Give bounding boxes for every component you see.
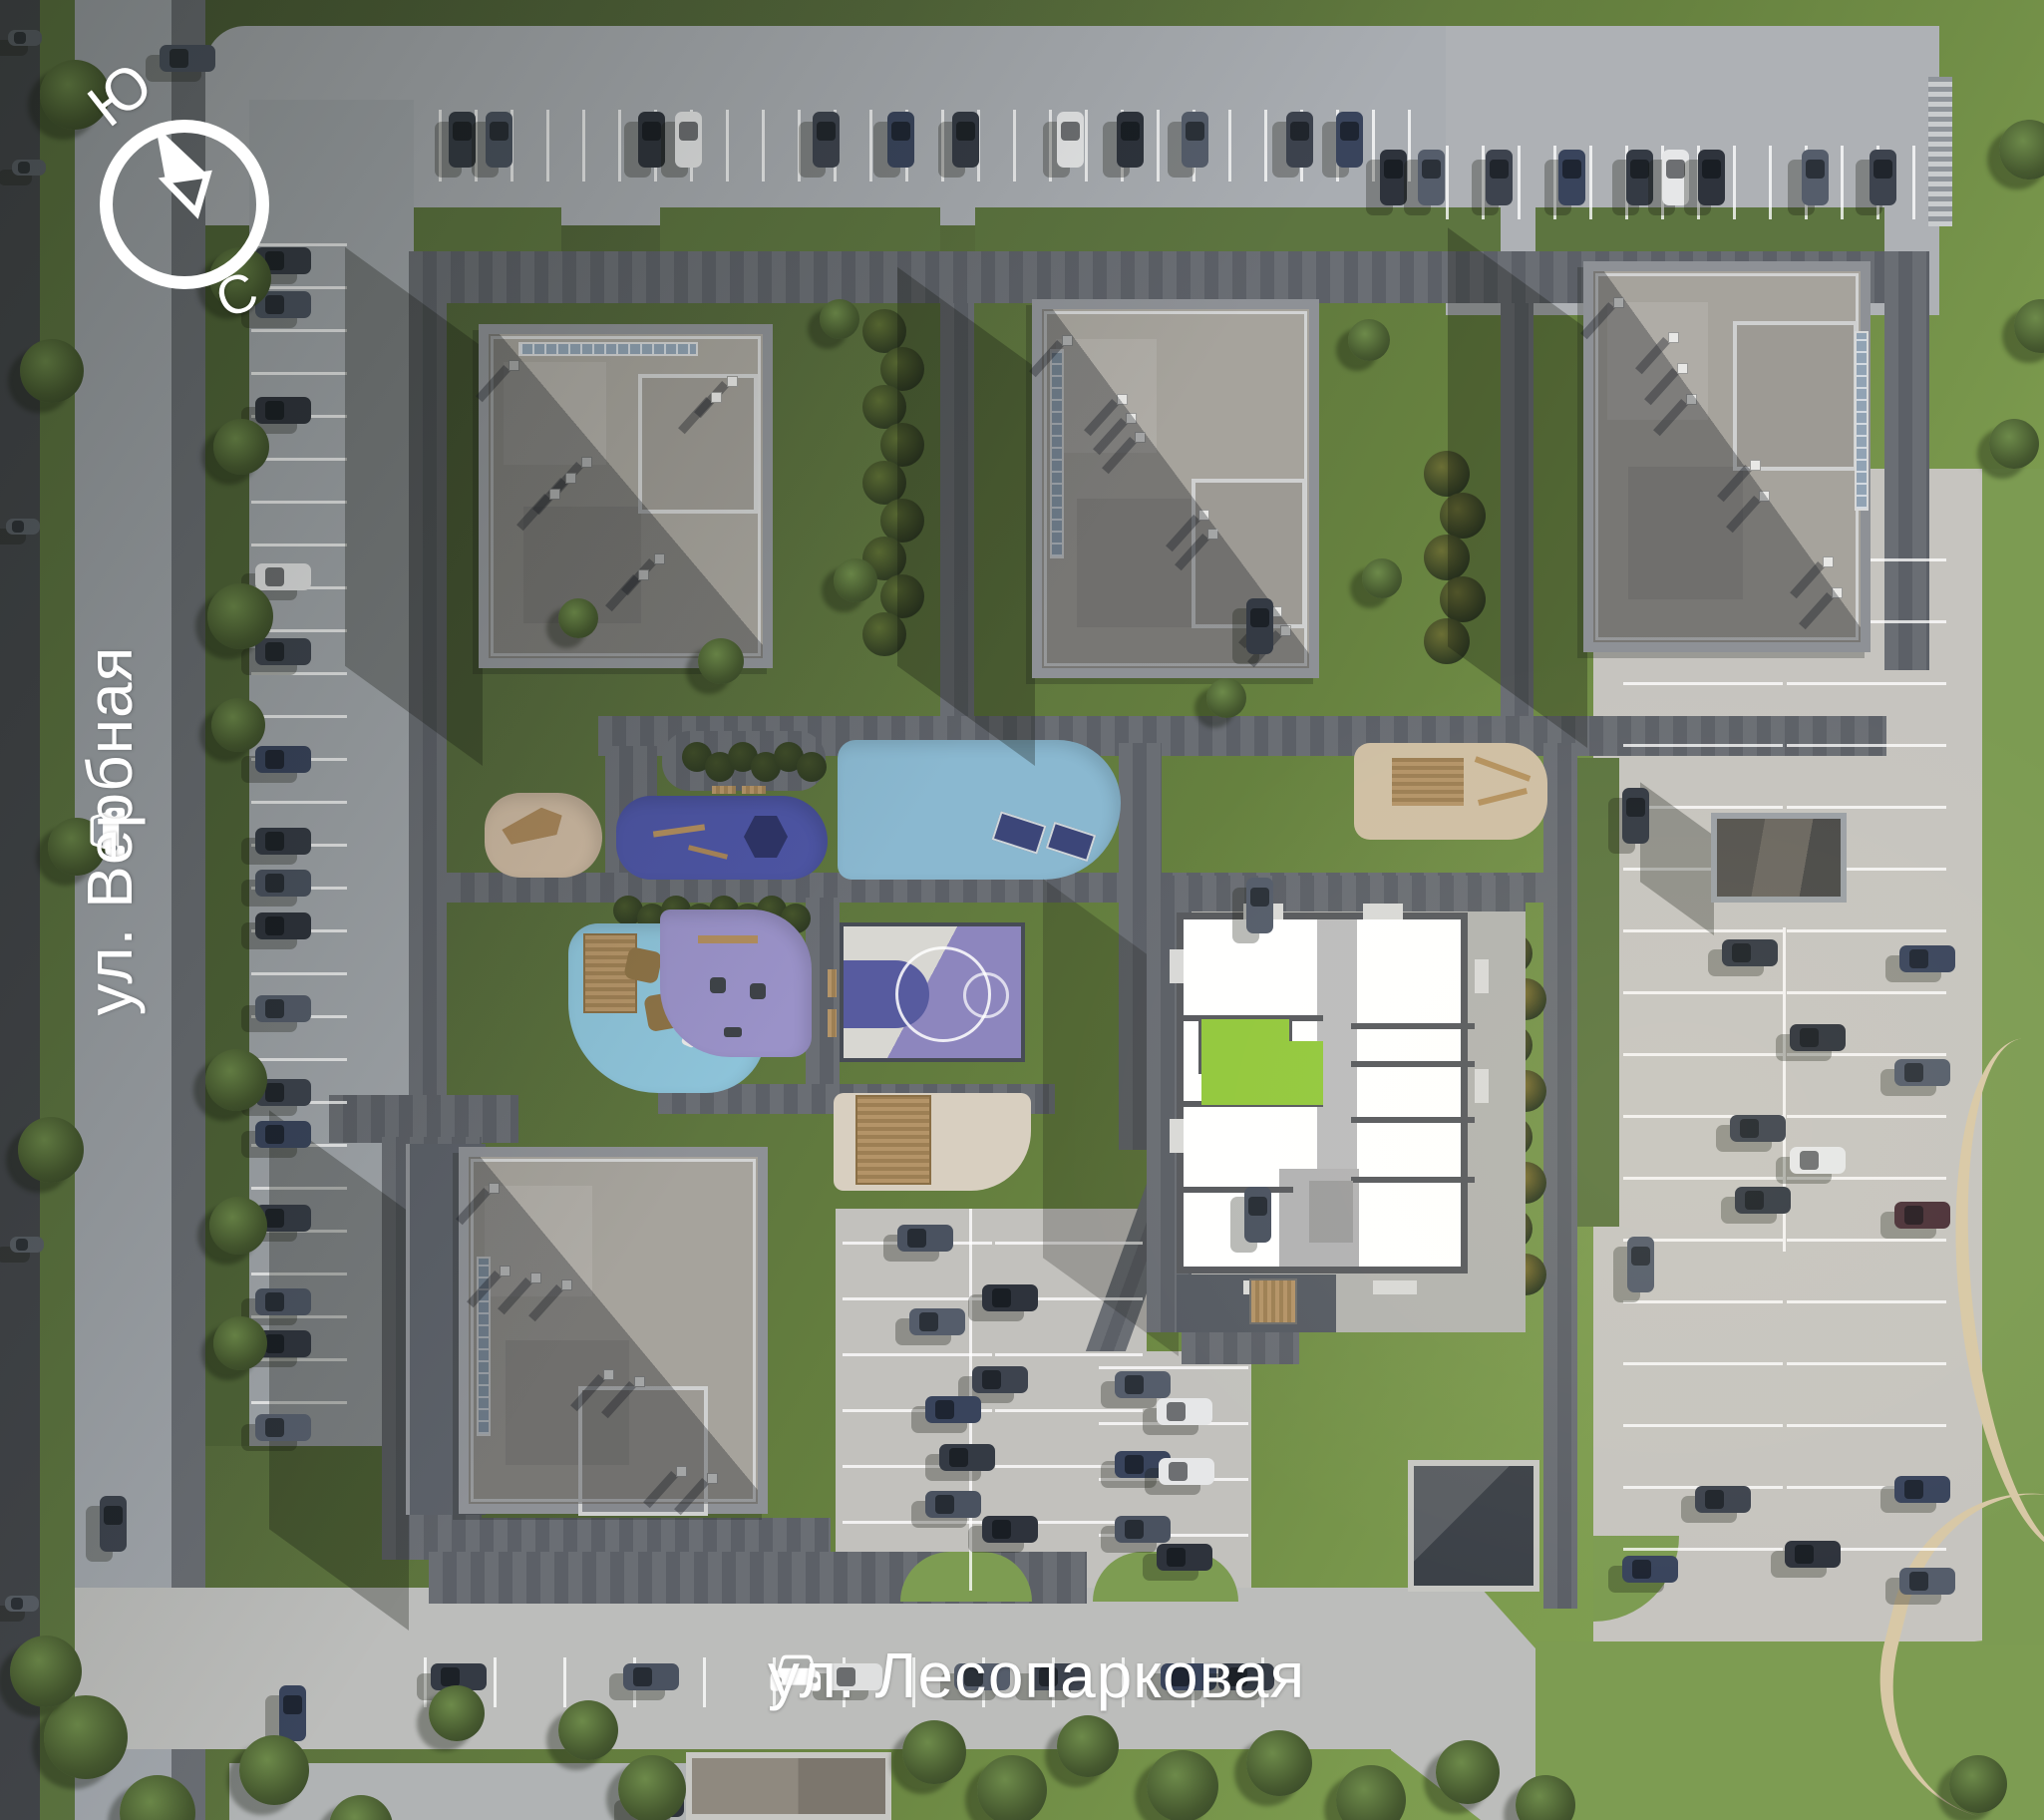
stall-line [1013,110,1016,182]
tree [558,1700,618,1760]
tree [1949,1755,2007,1813]
tree [1362,558,1402,598]
stall-line [726,110,729,182]
stall-line [582,110,585,182]
car [638,112,665,168]
car [1380,150,1407,205]
building-tower-1[interactable] [479,324,773,668]
tree [213,419,269,475]
car [1899,945,1955,972]
green-island [1577,758,1619,1227]
tree [1336,1765,1406,1820]
car [1735,1187,1791,1214]
tree [44,1695,128,1779]
car [255,1288,311,1315]
car [1790,1147,1846,1174]
stairs-top-right [1928,77,1952,226]
car [1790,1024,1846,1051]
parking-pavilion [1711,813,1847,903]
stall-line [251,501,347,504]
stall-line [494,1657,497,1707]
car [1899,1568,1955,1595]
stall-line [1787,991,1946,994]
tree [1999,120,2044,180]
stall-line [1623,682,1783,685]
car [1115,1371,1171,1398]
stall-line [1446,146,1449,219]
car [255,828,311,855]
stall-line [1787,929,1946,932]
hedge-bush [1424,451,1470,497]
tree [207,583,273,649]
stall-line [251,544,347,546]
stall-line [941,110,944,182]
hedge-bush [1440,576,1486,622]
car [255,563,311,590]
tree [698,638,744,684]
green-island [1535,207,1884,251]
stall-line [1228,110,1231,182]
bench [828,969,837,997]
car [675,112,702,168]
building-tower-2[interactable] [1032,299,1319,678]
stall-line [251,372,347,375]
car [925,1396,981,1423]
car [1730,1115,1786,1142]
tree [1989,419,2039,469]
spring-rider-icon [750,983,766,999]
highlighted-apartment[interactable] [1201,1019,1289,1071]
stall-line [1482,146,1485,219]
court-arc [963,972,1009,1018]
compass: Ю С [60,40,359,359]
car [1695,1486,1751,1513]
play-tower-icon [623,946,663,984]
tree [239,1735,309,1805]
stall-line [1912,146,1915,219]
car [255,870,311,897]
driveway [1501,303,1533,716]
paver-band [1147,876,1526,911]
stall-line [1623,1424,1783,1427]
driveway [1543,743,1577,1609]
stall-line [1518,146,1521,219]
masterplan-aerial-map: Ю С ул. Вербная ул. Лесопарковая [0,0,2044,1820]
bench [712,786,736,794]
tree [1147,1750,1218,1820]
stall-line [1733,146,1736,219]
stall-line [439,110,442,182]
stall-line [1787,1053,1946,1056]
driveway [329,1095,518,1143]
building-tower-3[interactable] [1583,261,1871,652]
car [1286,112,1313,168]
stall-line [1049,110,1052,182]
stall-line [251,1058,347,1061]
street-label-verbnaya: ул. Вербная [87,581,133,1080]
stall-line [1623,991,1783,994]
stall-line [869,110,872,182]
highlighted-apartment[interactable] [1287,1041,1323,1071]
car [972,1366,1028,1393]
car [1662,150,1689,205]
car [6,519,40,535]
car [1336,112,1363,168]
monkey-bars-icon [698,935,758,943]
stall-line [1787,744,1946,747]
stall-line [1623,929,1783,932]
stall-line [1553,146,1556,219]
car [1785,1541,1841,1568]
tree [1246,1730,1312,1796]
stall-line [1787,1177,1946,1180]
stall-line [1787,1239,1946,1242]
hedge-bush [862,612,906,656]
street-label-lesoparkovaya: ул. Лесопарковая [768,1651,826,1699]
car [887,112,914,168]
green-island [414,207,561,251]
driveway [409,251,447,1145]
stall-line [1787,1424,1946,1427]
tree [10,1636,82,1707]
car [255,746,311,773]
stall-line [251,1358,347,1361]
car [982,1284,1038,1311]
compass-north-label: С [207,259,266,331]
pergola [855,1095,931,1185]
stall-line [1157,110,1160,182]
car [952,112,979,168]
car [1870,150,1896,205]
car [1157,1544,1212,1571]
stall-line [1085,110,1088,182]
stall-line [1787,1300,1946,1303]
stall-line [1623,1362,1783,1365]
car [1622,1556,1678,1583]
car [1622,788,1649,844]
car [486,112,512,168]
stall-line [1099,1366,1248,1369]
car [1698,150,1725,205]
stall-line [762,110,765,182]
car [1159,1458,1214,1485]
hedge-bush [1440,493,1486,539]
car [897,1225,953,1252]
bench [828,1009,837,1037]
stall-line [1623,744,1783,747]
street-label-text: ул. Вербная [73,646,147,1016]
car [1894,1476,1950,1503]
tree [618,1755,686,1820]
tree [205,1049,267,1111]
stall-line [1372,110,1375,182]
car [1627,1237,1654,1292]
car [1626,150,1653,205]
car [909,1308,965,1335]
car [279,1685,306,1741]
car [255,1414,311,1441]
spring-rider-icon [724,1027,742,1037]
car [255,912,311,939]
tree [429,1685,485,1741]
entrance-canopy [1249,1278,1297,1324]
car [5,1596,39,1612]
car [1246,598,1273,654]
stall-line [251,1401,347,1404]
green-island [975,207,1501,251]
underground-parking-entrance [1408,1460,1539,1592]
stall-line [1589,146,1592,219]
tree [209,1197,267,1255]
car [255,397,311,424]
shade [489,334,763,658]
driveway [1884,251,1929,670]
spring-rider-icon [710,977,726,993]
tree [558,598,598,638]
workout-deck [1392,758,1464,806]
car [1244,1187,1271,1243]
stall-line [424,1657,427,1707]
car [8,30,42,46]
car [1057,112,1084,168]
tree [834,558,877,602]
stall-line [703,1657,706,1707]
car [100,1496,127,1552]
shade [1593,271,1861,642]
hedge-bush [1424,618,1470,664]
stall-line [546,110,549,182]
bench [742,786,766,794]
hedge-bush [797,752,827,782]
stall-line [995,1242,1143,1245]
car [12,160,46,176]
stall-line [1769,146,1772,219]
service-building-south [686,1752,891,1820]
car [1115,1516,1171,1543]
car [255,1121,311,1148]
car [10,1237,44,1253]
car [1182,112,1208,168]
tree [213,1316,267,1370]
car [1117,112,1144,168]
driveway [940,303,974,716]
tree [902,1720,966,1784]
car [1558,150,1585,205]
floorplan-building[interactable] [1177,912,1468,1274]
stall-line [563,1657,566,1707]
tree [18,1117,84,1183]
car [623,1663,679,1690]
compass-needle-icon [125,115,244,234]
tree [1436,1740,1500,1804]
car [255,638,311,665]
stall-line [1787,682,1946,685]
car [1157,1398,1212,1425]
car [1802,150,1829,205]
stall-line [1623,1177,1783,1180]
stall-line [251,1273,347,1275]
playground-navy [616,796,828,880]
tree [211,698,265,752]
tree [820,299,859,339]
far-left-road [0,0,40,1820]
car [982,1516,1038,1543]
stall-line [1264,110,1267,182]
stall-line [1623,1053,1783,1056]
stall-line [1841,146,1844,219]
building-tower-4[interactable] [459,1147,768,1514]
tree [1206,678,1246,718]
stall-line [1408,110,1411,182]
stall-line [1787,806,1946,809]
stall-line [1623,1300,1783,1303]
car [1894,1059,1950,1086]
tree [1348,319,1390,361]
stall-line [1787,1115,1946,1118]
tree [977,1755,1047,1820]
stall-line [251,672,347,675]
stall-line [798,110,801,182]
basketball-court [840,922,1025,1062]
stall-line [251,1187,347,1190]
stall-line [618,110,621,182]
car [255,995,311,1022]
stall-line [995,1409,1143,1412]
car [813,112,840,168]
car [1418,150,1445,205]
car [939,1444,995,1471]
car [1722,939,1778,966]
stall-line [995,1353,1143,1356]
hedge-bush [1424,535,1470,580]
car [925,1491,981,1518]
shade [469,1157,758,1504]
car [1246,878,1273,933]
green-island [660,207,940,251]
stairs [1309,1181,1353,1243]
highlighted-apartment[interactable] [1201,1069,1323,1105]
stall-line [1623,1548,1783,1551]
tree [2014,299,2044,353]
street-label-text: ул. Лесопарковая [768,1638,1305,1712]
car [449,112,476,168]
stall-line [251,1315,347,1318]
car [1894,1202,1950,1229]
stall-line [251,715,347,718]
car [1486,150,1513,205]
stall-line [1787,1362,1946,1365]
stall-line [251,801,347,804]
tree [1057,1715,1119,1777]
stall-line [251,972,347,975]
